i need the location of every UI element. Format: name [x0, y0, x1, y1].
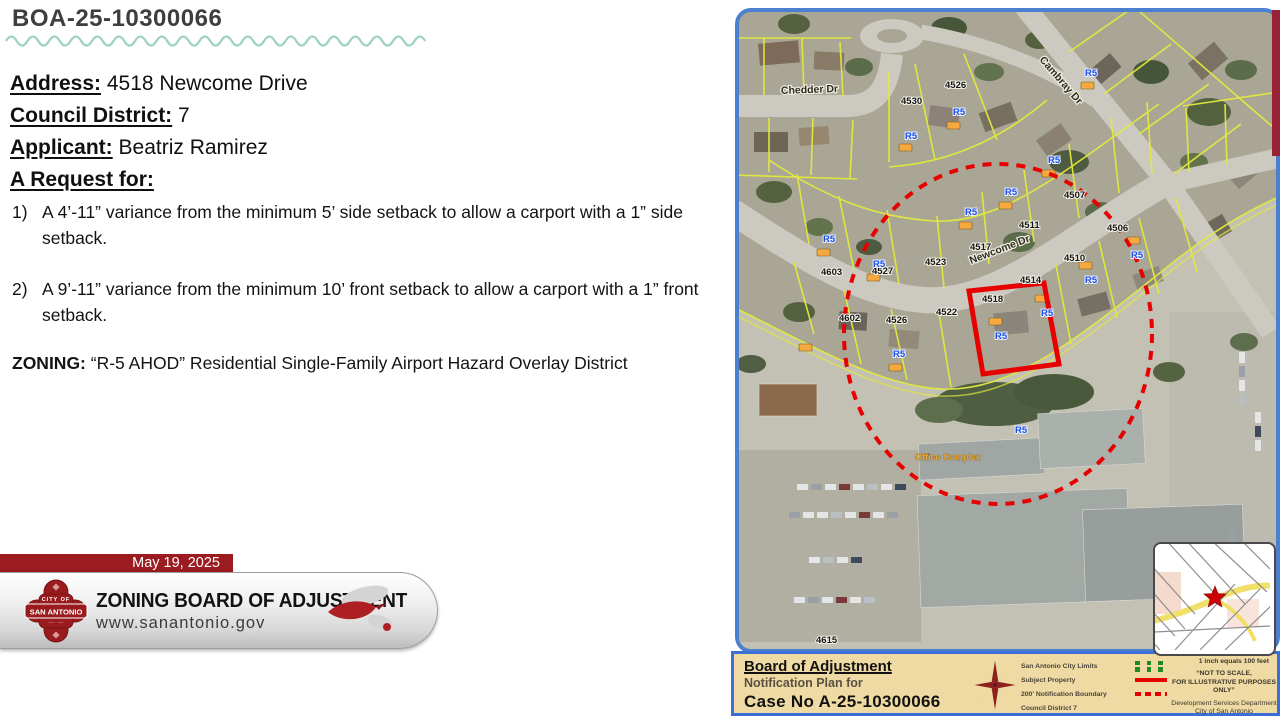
- city-limits-symbol: [1135, 661, 1165, 672]
- parking-lot: [739, 450, 921, 642]
- legend-heading: Board of Adjustment: [744, 658, 969, 675]
- parcel-4514: 4514: [1020, 275, 1042, 286]
- inset-locator-map: [1153, 542, 1276, 656]
- chili-pepper-icon: [323, 581, 397, 641]
- request-2-number: 2): [12, 276, 42, 328]
- parcel-4506: 4506: [1107, 223, 1128, 234]
- slide: BOA-25-10300066 Address: 4518 Newcome Dr…: [0, 0, 1280, 720]
- request-item-1: 1) A 4’-11” variance from the minimum 5’…: [12, 199, 717, 251]
- notification-boundary-symbol: [1135, 692, 1167, 697]
- svg-text:— · —: — · —: [49, 620, 63, 626]
- parcel-4526: 4526: [886, 315, 907, 326]
- case-title: BOA-25-10300066: [12, 5, 222, 33]
- parcel-4523: 4523: [925, 257, 946, 268]
- zone-label-r5: R5: [873, 259, 886, 270]
- zoning-text: “R-5 AHOD” Residential Single-Family Air…: [86, 353, 628, 373]
- parcel-4517: 4517: [970, 242, 991, 253]
- council-district-value: 7: [178, 104, 190, 127]
- request-1-number: 1): [12, 199, 42, 251]
- inset-map-graphic: [1155, 544, 1270, 650]
- zone-label-r5: R5: [1015, 425, 1028, 436]
- footer-banner: CITY OF SAN ANTONIO — · — ZONING BOARD O…: [0, 572, 438, 649]
- legend-subheading: Notification Plan for: [744, 676, 969, 690]
- zone-label-r5: R5: [823, 234, 836, 245]
- zone-label-r5: R5: [1048, 155, 1061, 166]
- department-line-2: City of San Antonio: [1171, 708, 1277, 717]
- disclaimer: “NOT TO SCALE, FOR ILLUSTRATIVE PURPOSES…: [1171, 670, 1277, 696]
- logo-city-of: CITY OF: [42, 597, 71, 603]
- scale-note: 1 inch equals 100 feet: [1171, 658, 1277, 665]
- zone-label-r5: R5: [1085, 275, 1098, 286]
- zone-label-r5: R5: [965, 207, 978, 218]
- parcel-4603: 4603: [821, 267, 842, 278]
- applicant-row: Applicant: Beatriz Ramirez: [10, 132, 308, 164]
- parcel-4507: 4507: [1064, 190, 1085, 201]
- zone-label-r5: R5: [893, 349, 906, 360]
- request-heading: A Request for:: [10, 164, 308, 196]
- legend-case-number: Case No A-25-10300066: [744, 692, 969, 712]
- zone-label-r5: R5: [1041, 308, 1054, 319]
- right-edge-red-strip: [1272, 10, 1280, 156]
- disclaimer-line-1: “NOT TO SCALE,: [1171, 670, 1277, 679]
- legend-panel: Board of Adjustment Notification Plan fo…: [731, 651, 1280, 716]
- logo-san-antonio: SAN ANTONIO: [30, 607, 83, 616]
- street-label-chedder: Chedder Dr: [781, 83, 839, 97]
- parcel-4522: 4522: [936, 307, 957, 318]
- zone-label-r5: R5: [995, 331, 1008, 342]
- legend-item-boundary: 200' Notification Boundary: [1021, 688, 1171, 700]
- legend-label-subject-property: Subject Property: [1021, 677, 1075, 684]
- legend-label-council-district: Council District 7: [1021, 705, 1077, 712]
- request-item-2: 2) A 9’-11” variance from the minimum 10…: [12, 276, 717, 328]
- council-district-row: Council District: 7: [10, 100, 308, 132]
- request-1-text: A 4’-11” variance from the minimum 5’ si…: [42, 199, 717, 251]
- department-credit: Development Services Department City of …: [1171, 700, 1277, 717]
- compass-rose-icon: [969, 654, 1021, 713]
- department-line-1: Development Services Department: [1171, 700, 1277, 709]
- request-2-text: A 9’-11” variance from the minimum 10’ f…: [42, 276, 717, 328]
- legend-label-boundary: 200' Notification Boundary: [1021, 691, 1107, 698]
- cul-de-sac-island: [877, 29, 907, 43]
- parcel-4602: 4602: [839, 313, 860, 324]
- zone-label-r5: R5: [953, 107, 966, 118]
- legend-item-council-district: Council District 7: [1021, 702, 1171, 714]
- address-row: Address: 4518 Newcome Drive: [10, 68, 308, 100]
- parcel-4510: 4510: [1064, 253, 1085, 264]
- council-district-label: Council District:: [10, 104, 172, 127]
- zone-label-r5: R5: [1131, 250, 1144, 261]
- applicant-label: Applicant:: [10, 136, 113, 159]
- request-list: 1) A 4’-11” variance from the minimum 5’…: [12, 199, 717, 328]
- date-bar: May 19, 2025: [0, 554, 233, 572]
- parcel-4518: 4518: [982, 294, 1003, 305]
- city-of-san-antonio-logo: CITY OF SAN ANTONIO — · —: [24, 578, 88, 644]
- zoning-line: ZONING: “R-5 AHOD” Residential Single-Fa…: [12, 351, 717, 375]
- legend-items: San Antonio City Limits Subject Property…: [1021, 654, 1171, 713]
- zone-label-r5: R5: [1005, 187, 1018, 198]
- wavy-underline: [4, 31, 436, 49]
- applicant-value: Beatriz Ramirez: [119, 136, 268, 159]
- legend-item-subject-property: Subject Property: [1021, 674, 1171, 686]
- office-complex-label: Office Complex: [915, 452, 981, 462]
- zone-label-r5: R5: [905, 131, 918, 142]
- parcel-4511: 4511: [1019, 220, 1040, 231]
- disclaimer-line-2: FOR ILLUSTRATIVE PURPOSES ONLY”: [1171, 679, 1277, 696]
- legend-item-city-limits: San Antonio City Limits: [1021, 660, 1171, 672]
- zone-label-r5: R5: [1085, 68, 1098, 79]
- parcel-4526-top: 4526: [945, 80, 966, 91]
- subject-property-symbol: [1135, 678, 1167, 683]
- parcel-4615: 4615: [816, 635, 838, 646]
- legend-label-city-limits: San Antonio City Limits: [1021, 663, 1097, 670]
- legend-title-block: Board of Adjustment Notification Plan fo…: [734, 654, 969, 713]
- address-value: 4518 Newcome Drive: [107, 72, 308, 95]
- zoning-label: ZONING:: [12, 353, 86, 373]
- case-fields: Address: 4518 Newcome Drive Council Dist…: [10, 68, 308, 196]
- legend-notes: 1 inch equals 100 feet “NOT TO SCALE, FO…: [1171, 654, 1277, 713]
- address-label: Address:: [10, 72, 101, 95]
- parcel-4530: 4530: [901, 96, 922, 107]
